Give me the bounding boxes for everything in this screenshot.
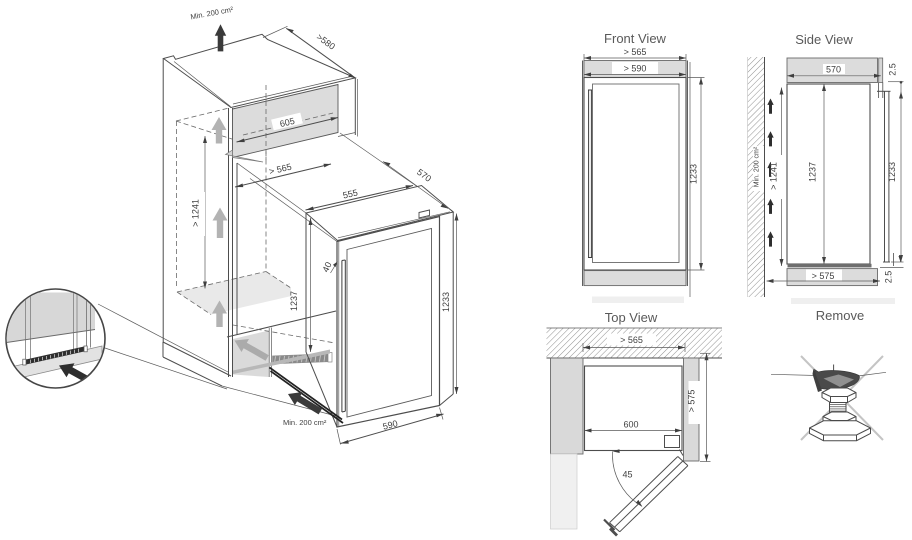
svg-text:1237: 1237 — [289, 291, 299, 311]
svg-text:1233: 1233 — [689, 164, 699, 184]
svg-text:> 1241: > 1241 — [191, 199, 201, 227]
svg-text:Top View: Top View — [605, 310, 658, 325]
svg-text:> 575: > 575 — [812, 271, 835, 281]
svg-text:> 590: > 590 — [624, 64, 647, 74]
svg-text:Remove: Remove — [816, 308, 864, 323]
svg-text:Min. 200 cm²: Min. 200 cm² — [754, 146, 761, 187]
svg-text:570: 570 — [826, 65, 841, 75]
svg-text:1233: 1233 — [441, 292, 451, 312]
svg-text:> 1241: > 1241 — [769, 162, 779, 190]
svg-text:Side View: Side View — [795, 32, 853, 47]
svg-text:1233: 1233 — [887, 162, 897, 182]
svg-text:600: 600 — [623, 420, 638, 430]
svg-text:> 565: > 565 — [624, 47, 647, 57]
svg-text:2.5: 2.5 — [884, 271, 894, 284]
svg-text:Front View: Front View — [604, 31, 667, 46]
svg-text:Min. 200 cm²: Min. 200 cm² — [283, 418, 327, 427]
svg-text:2.5: 2.5 — [888, 63, 898, 76]
svg-text:> 575: > 575 — [687, 390, 697, 413]
svg-text:1237: 1237 — [808, 162, 818, 182]
svg-text:> 565: > 565 — [620, 335, 643, 345]
svg-text:45: 45 — [622, 470, 632, 480]
